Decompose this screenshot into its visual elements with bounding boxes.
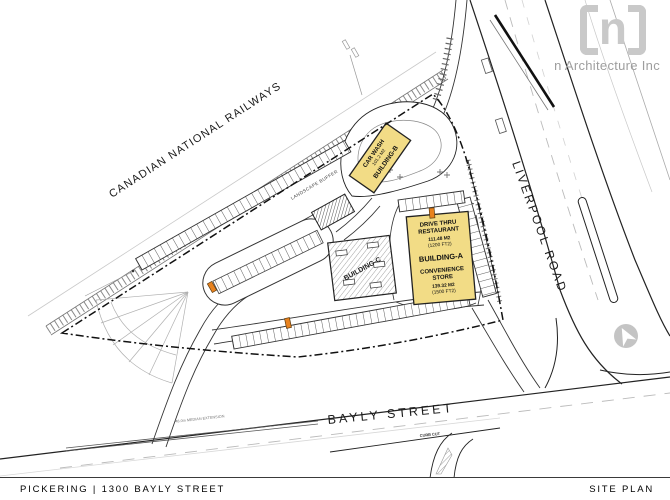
firm-logo: n n Architecture Inc: [554, 5, 660, 73]
building-a: DRIVE THRU RESTAURANT 111.48 M2 (1200 FT…: [406, 211, 475, 304]
sign-posts: [342, 40, 362, 95]
liverpool-road-label: LIVERPOOL ROAD: [509, 159, 570, 295]
road-median: [577, 196, 619, 303]
logo-mark-icon: n: [580, 5, 646, 55]
refuse-enclosure: [312, 194, 355, 230]
logo-company-name: n Architecture Inc: [554, 58, 660, 73]
median-extension-label: 48.0m MEDIAN EXTENSION: [175, 414, 225, 423]
bayly-street-label: BAYLY STREET: [327, 401, 455, 427]
landscape-fan: [96, 292, 188, 383]
north-arrow-icon: [614, 324, 638, 348]
building-c: BUILDING-C: [328, 235, 397, 300]
title-block: PICKERING | 1300 BAYLY STREET SITE PLAN: [0, 477, 670, 500]
logo-bracket-left: [580, 5, 598, 55]
railway-crossing-line: [495, 15, 554, 107]
logo-letter: n: [599, 5, 627, 55]
logo-bracket-right: [628, 5, 646, 55]
sheet-title: SITE PLAN: [589, 484, 654, 495]
project-title: PICKERING | 1300 BAYLY STREET: [20, 484, 225, 495]
railway-label: CANADIAN NATIONAL RAILWAYS: [107, 80, 284, 200]
site-plan-page: BUILDING-C CAR WASH 101.2 M2 BUILDING-B …: [0, 0, 670, 500]
